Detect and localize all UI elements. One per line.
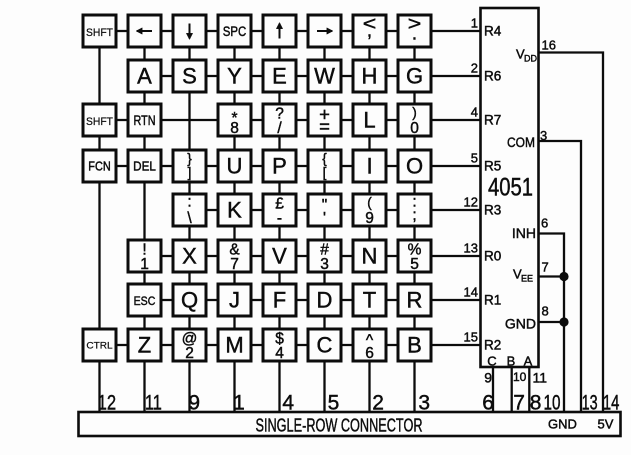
svg-text:H: H bbox=[362, 64, 378, 89]
svg-text:P: P bbox=[272, 154, 287, 179]
svg-text:J: J bbox=[229, 288, 240, 313]
svg-text:R3: R3 bbox=[484, 203, 501, 218]
svg-text:8: 8 bbox=[530, 392, 542, 415]
svg-text:7: 7 bbox=[230, 256, 239, 273]
svg-text:2: 2 bbox=[185, 345, 194, 362]
svg-text:CTRL: CTRL bbox=[86, 341, 112, 352]
svg-text:DEL: DEL bbox=[133, 159, 156, 173]
svg-text:GND: GND bbox=[548, 417, 577, 432]
svg-text:M: M bbox=[225, 333, 243, 358]
svg-text:4: 4 bbox=[275, 345, 284, 362]
svg-text:8: 8 bbox=[542, 304, 549, 319]
svg-text:COM: COM bbox=[507, 135, 535, 150]
svg-text:,: , bbox=[367, 20, 372, 42]
svg-text:SPC: SPC bbox=[223, 24, 247, 39]
svg-text:9: 9 bbox=[188, 392, 200, 415]
svg-text:SHFT: SHFT bbox=[86, 27, 113, 39]
svg-text:T: T bbox=[363, 288, 376, 313]
svg-text:D: D bbox=[317, 288, 333, 313]
svg-text:.: . bbox=[412, 22, 417, 44]
svg-text:A: A bbox=[137, 64, 152, 89]
svg-text:SHFT: SHFT bbox=[86, 116, 113, 128]
svg-text:5: 5 bbox=[471, 151, 478, 166]
svg-text:3: 3 bbox=[418, 392, 430, 415]
svg-text:V: V bbox=[272, 244, 287, 269]
svg-text:5: 5 bbox=[328, 392, 340, 415]
svg-text:E: E bbox=[272, 64, 287, 89]
svg-text:G: G bbox=[406, 64, 423, 89]
svg-text:SINGLE-ROW CONNECTOR: SINGLE-ROW CONNECTOR bbox=[256, 416, 423, 436]
svg-text:C: C bbox=[487, 354, 496, 369]
svg-text:Y: Y bbox=[227, 64, 242, 89]
svg-text:(: ( bbox=[367, 195, 372, 210]
svg-text:S: S bbox=[182, 64, 197, 89]
svg-text:}: } bbox=[187, 151, 192, 166]
svg-text:/: / bbox=[277, 120, 282, 137]
svg-text:C: C bbox=[317, 333, 333, 358]
svg-text:5: 5 bbox=[410, 256, 419, 273]
svg-text:GND: GND bbox=[505, 316, 536, 332]
svg-text:=: = bbox=[319, 115, 330, 136]
svg-text:16: 16 bbox=[542, 38, 556, 53]
svg-text:3: 3 bbox=[540, 128, 547, 143]
svg-text:4: 4 bbox=[282, 392, 294, 415]
svg-text:13: 13 bbox=[582, 392, 598, 415]
svg-text:7: 7 bbox=[513, 392, 525, 415]
svg-text:N: N bbox=[362, 244, 378, 269]
svg-text:11: 11 bbox=[533, 370, 548, 386]
svg-text:6: 6 bbox=[482, 392, 494, 415]
svg-text:R4: R4 bbox=[484, 24, 502, 39]
svg-text:X: X bbox=[182, 244, 197, 269]
svg-text:10: 10 bbox=[544, 392, 561, 415]
svg-text:Q: Q bbox=[181, 288, 198, 313]
svg-text:R: R bbox=[407, 288, 423, 313]
svg-text:R0: R0 bbox=[484, 249, 501, 264]
svg-text:15: 15 bbox=[464, 330, 478, 345]
svg-text:1: 1 bbox=[140, 256, 149, 273]
svg-text:): ) bbox=[412, 105, 417, 120]
svg-text:A: A bbox=[524, 354, 533, 369]
svg-text:\: \ bbox=[187, 210, 192, 227]
svg-text:1: 1 bbox=[471, 16, 478, 31]
svg-text:R6: R6 bbox=[484, 69, 501, 84]
svg-text:B: B bbox=[507, 354, 516, 369]
svg-text:INH: INH bbox=[512, 225, 536, 241]
svg-text:EE: EE bbox=[521, 274, 533, 284]
svg-text:K: K bbox=[227, 198, 242, 223]
svg-text:R1: R1 bbox=[484, 293, 501, 308]
svg-text:0: 0 bbox=[410, 120, 419, 137]
svg-text:RTN: RTN bbox=[134, 113, 156, 128]
svg-text:11: 11 bbox=[145, 392, 162, 415]
svg-text:W: W bbox=[314, 64, 335, 89]
svg-text:L: L bbox=[363, 108, 375, 133]
svg-text:DD: DD bbox=[524, 54, 537, 64]
svg-text:10: 10 bbox=[513, 370, 527, 384]
svg-text:]: ] bbox=[188, 165, 192, 180]
svg-text:R7: R7 bbox=[484, 113, 501, 128]
svg-text:14: 14 bbox=[464, 285, 478, 300]
svg-text:R5: R5 bbox=[484, 159, 501, 174]
svg-text:12: 12 bbox=[98, 392, 117, 415]
svg-text:1: 1 bbox=[233, 392, 245, 415]
svg-text:[: [ bbox=[323, 165, 327, 180]
svg-text:12: 12 bbox=[464, 195, 478, 210]
svg-text:O: O bbox=[406, 154, 423, 179]
svg-text:9: 9 bbox=[365, 210, 374, 227]
svg-text:Z: Z bbox=[138, 333, 151, 358]
svg-text:ESC: ESC bbox=[134, 294, 156, 308]
svg-text:R2: R2 bbox=[484, 338, 501, 353]
svg-text:9: 9 bbox=[484, 370, 492, 386]
svg-text:FCN: FCN bbox=[88, 159, 110, 173]
svg-text:F: F bbox=[273, 288, 286, 313]
svg-text:6: 6 bbox=[541, 216, 548, 231]
svg-text:B: B bbox=[407, 333, 422, 358]
svg-text:8: 8 bbox=[230, 120, 239, 137]
svg-text:U: U bbox=[227, 154, 243, 179]
svg-text:14: 14 bbox=[603, 392, 620, 415]
svg-text:': ' bbox=[323, 210, 326, 227]
svg-text:4051: 4051 bbox=[488, 174, 533, 202]
svg-text:5V: 5V bbox=[598, 417, 614, 432]
svg-text:4: 4 bbox=[471, 105, 478, 120]
svg-text:-: - bbox=[277, 210, 282, 227]
svg-text:;: ; bbox=[412, 207, 416, 224]
svg-text::: : bbox=[187, 194, 191, 211]
svg-text:{: { bbox=[322, 151, 327, 166]
svg-text:2: 2 bbox=[471, 61, 478, 76]
svg-text:3: 3 bbox=[320, 256, 329, 273]
svg-text:13: 13 bbox=[464, 241, 478, 256]
svg-text:2: 2 bbox=[372, 392, 384, 415]
svg-text:I: I bbox=[366, 154, 372, 179]
svg-text:6: 6 bbox=[365, 345, 374, 362]
svg-text:7: 7 bbox=[542, 260, 549, 275]
